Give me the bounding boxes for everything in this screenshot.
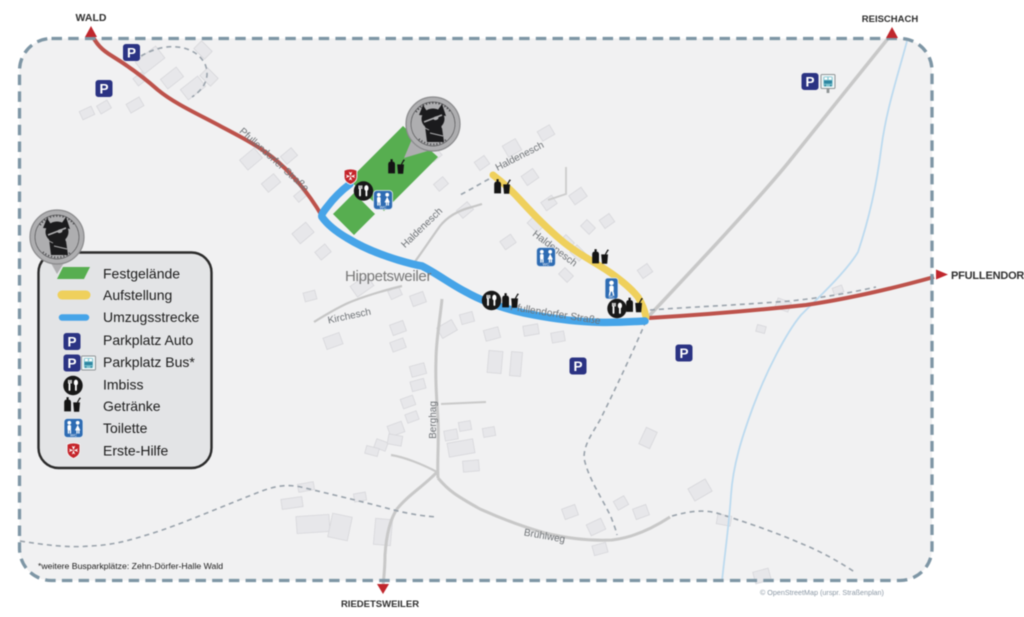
svg-text:Erste-Hilfe: Erste-Hilfe	[103, 443, 169, 459]
svg-text:Umzugsstrecke: Umzugsstrecke	[103, 309, 200, 325]
svg-text:Hippetsweiler: Hippetsweiler	[345, 268, 431, 285]
svg-text:Aufstellung: Aufstellung	[103, 287, 172, 303]
svg-text:© OpenStreetMap (urspr. Straß: © OpenStreetMap (urspr. Straßenplan)	[760, 588, 884, 597]
svg-text:PFULLENDORF: PFULLENDORF	[951, 270, 1024, 282]
svg-text:Berghag: Berghag	[428, 401, 439, 439]
svg-text:Parkplatz Auto: Parkplatz Auto	[103, 332, 193, 348]
svg-text:Imbiss: Imbiss	[103, 377, 143, 393]
svg-text:Festgelände: Festgelände	[103, 266, 180, 282]
svg-text:*weitere Busparkplätze: Zehn-D: *weitere Busparkplätze: Zehn-Dörfer-Hall…	[38, 561, 223, 571]
svg-text:WALD: WALD	[76, 12, 107, 24]
svg-text:Getränke: Getränke	[103, 398, 161, 414]
svg-text:REISCHACH: REISCHACH	[862, 14, 919, 25]
svg-text:RIEDETSWEILER: RIEDETSWEILER	[341, 599, 419, 610]
svg-text:Toilette: Toilette	[103, 420, 148, 436]
svg-text:Parkplatz Bus*: Parkplatz Bus*	[103, 354, 195, 370]
